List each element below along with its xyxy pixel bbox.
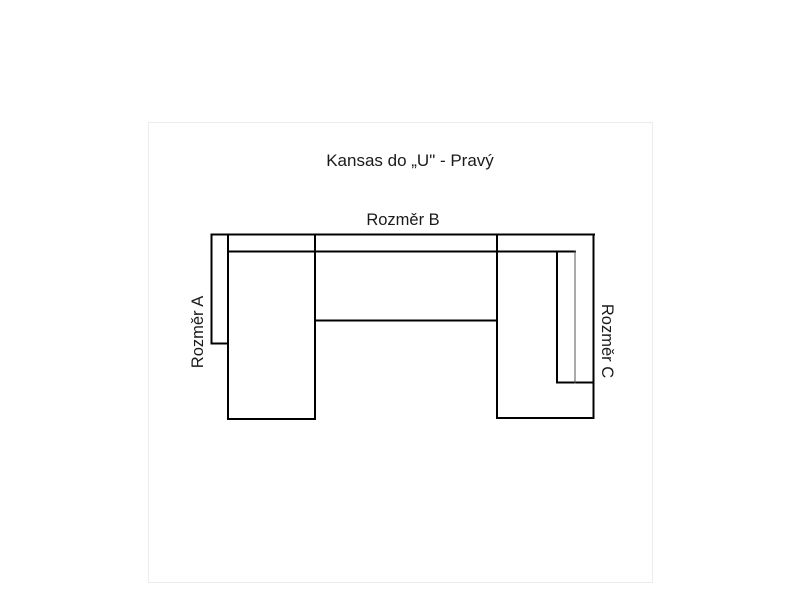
sofa-outline-diagram <box>0 0 800 600</box>
page: Kansas do „U" - Pravý Rozměr B Rozměr A … <box>0 0 800 600</box>
sofa-main-lines <box>210 233 595 420</box>
